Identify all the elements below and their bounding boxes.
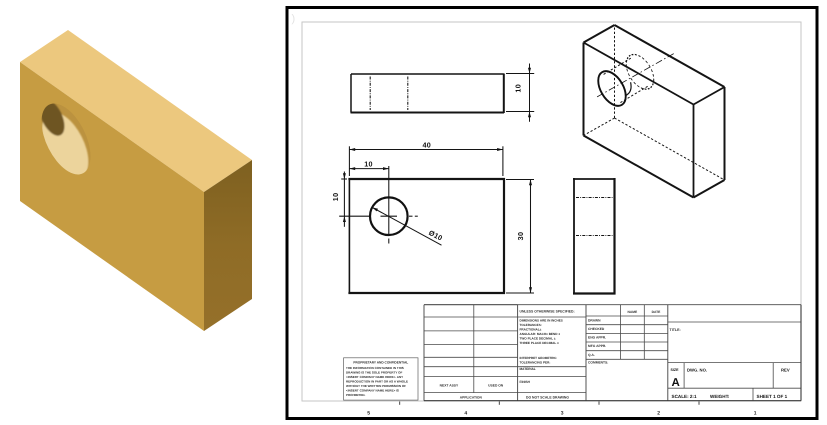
svg-text:FRACTIONAL±: FRACTIONAL± bbox=[520, 328, 542, 332]
svg-text:INTERPRET GEOMETRIC: INTERPRET GEOMETRIC bbox=[520, 356, 558, 360]
svg-text:APPLICATION: APPLICATION bbox=[460, 396, 483, 400]
svg-text:REV: REV bbox=[781, 368, 790, 373]
svg-text:40: 40 bbox=[422, 141, 431, 150]
svg-text:<INSERT COMPANY NAME HERE>. A: <INSERT COMPANY NAME HERE>. ANY bbox=[346, 375, 403, 379]
svg-text:MATERIAL: MATERIAL bbox=[520, 367, 536, 371]
svg-text:10: 10 bbox=[364, 159, 373, 168]
svg-text:DRAWING IS THE SOLE PROPERTY O: DRAWING IS THE SOLE PROPERTY OF bbox=[346, 370, 402, 374]
svg-text:FINISH: FINISH bbox=[520, 380, 531, 384]
svg-text:<INSERT COMPANY NAME HERE> IS: <INSERT COMPANY NAME HERE> IS bbox=[346, 388, 399, 392]
svg-text:WEIGHT:: WEIGHT: bbox=[710, 394, 730, 399]
svg-text:ANGULAR: MACH± BEND ±: ANGULAR: MACH± BEND ± bbox=[520, 332, 561, 336]
svg-text:NEXT ASSY: NEXT ASSY bbox=[440, 384, 459, 388]
svg-text:): ) bbox=[292, 13, 299, 25]
svg-text:PROHIBITED.: PROHIBITED. bbox=[346, 393, 366, 397]
svg-text:5: 5 bbox=[367, 411, 370, 417]
svg-text:REPRODUCTION IN PART OR AS A W: REPRODUCTION IN PART OR AS A WHOLE bbox=[346, 379, 408, 383]
svg-text:TITLE:: TITLE: bbox=[670, 328, 681, 332]
svg-text:USED ON: USED ON bbox=[488, 384, 504, 388]
svg-text:SIZE: SIZE bbox=[671, 368, 680, 372]
svg-text:NAME: NAME bbox=[628, 310, 639, 314]
svg-text:A: A bbox=[672, 377, 680, 389]
svg-text:ENG APPR.: ENG APPR. bbox=[588, 336, 606, 340]
svg-text:SCALE: 2:1: SCALE: 2:1 bbox=[672, 394, 697, 399]
svg-text:10: 10 bbox=[331, 193, 340, 202]
svg-text:1: 1 bbox=[754, 411, 757, 417]
svg-text:DO NOT SCALE DRAWING: DO NOT SCALE DRAWING bbox=[526, 396, 569, 400]
svg-text:WITHOUT THE WRITTEN PERMISSION: WITHOUT THE WRITTEN PERMISSION OF bbox=[346, 384, 406, 388]
svg-text:Ø10: Ø10 bbox=[427, 228, 444, 243]
svg-text:UNLESS OTHERWISE SPECIFIED:: UNLESS OTHERWISE SPECIFIED: bbox=[520, 309, 575, 313]
svg-text:THREE PLACE DECIMAL ±: THREE PLACE DECIMAL ± bbox=[520, 341, 560, 345]
svg-text:3: 3 bbox=[561, 411, 564, 417]
svg-text:2: 2 bbox=[657, 411, 660, 417]
svg-text:Q.A.: Q.A. bbox=[588, 353, 595, 357]
svg-text:DRAWN: DRAWN bbox=[588, 318, 601, 322]
svg-text:SHEET 1 OF 1: SHEET 1 OF 1 bbox=[757, 394, 788, 399]
svg-text:10: 10 bbox=[514, 84, 523, 93]
svg-text:DIMENSIONS ARE IN INCHES: DIMENSIONS ARE IN INCHES bbox=[520, 319, 563, 323]
svg-text:CHECKED: CHECKED bbox=[588, 327, 605, 331]
svg-text:30: 30 bbox=[516, 232, 525, 241]
svg-text:TOLERANCING PER:: TOLERANCING PER: bbox=[520, 360, 551, 364]
svg-text:4: 4 bbox=[464, 411, 467, 417]
svg-text:MFG APPR.: MFG APPR. bbox=[588, 344, 606, 348]
svg-text:DWG. NO.: DWG. NO. bbox=[687, 368, 707, 373]
svg-text:DATE: DATE bbox=[652, 310, 662, 314]
svg-text:TOLERANCES:: TOLERANCES: bbox=[520, 323, 542, 327]
svg-text:COMMENTS:: COMMENTS: bbox=[588, 361, 608, 365]
svg-text:TWO PLACE DECIMAL ±: TWO PLACE DECIMAL ± bbox=[520, 337, 556, 341]
svg-text:THE INFORMATION CONTAINED IN T: THE INFORMATION CONTAINED IN THIS bbox=[346, 366, 404, 370]
svg-text:PROPRIETARY AND CONFIDENTIAL: PROPRIETARY AND CONFIDENTIAL bbox=[353, 360, 408, 364]
